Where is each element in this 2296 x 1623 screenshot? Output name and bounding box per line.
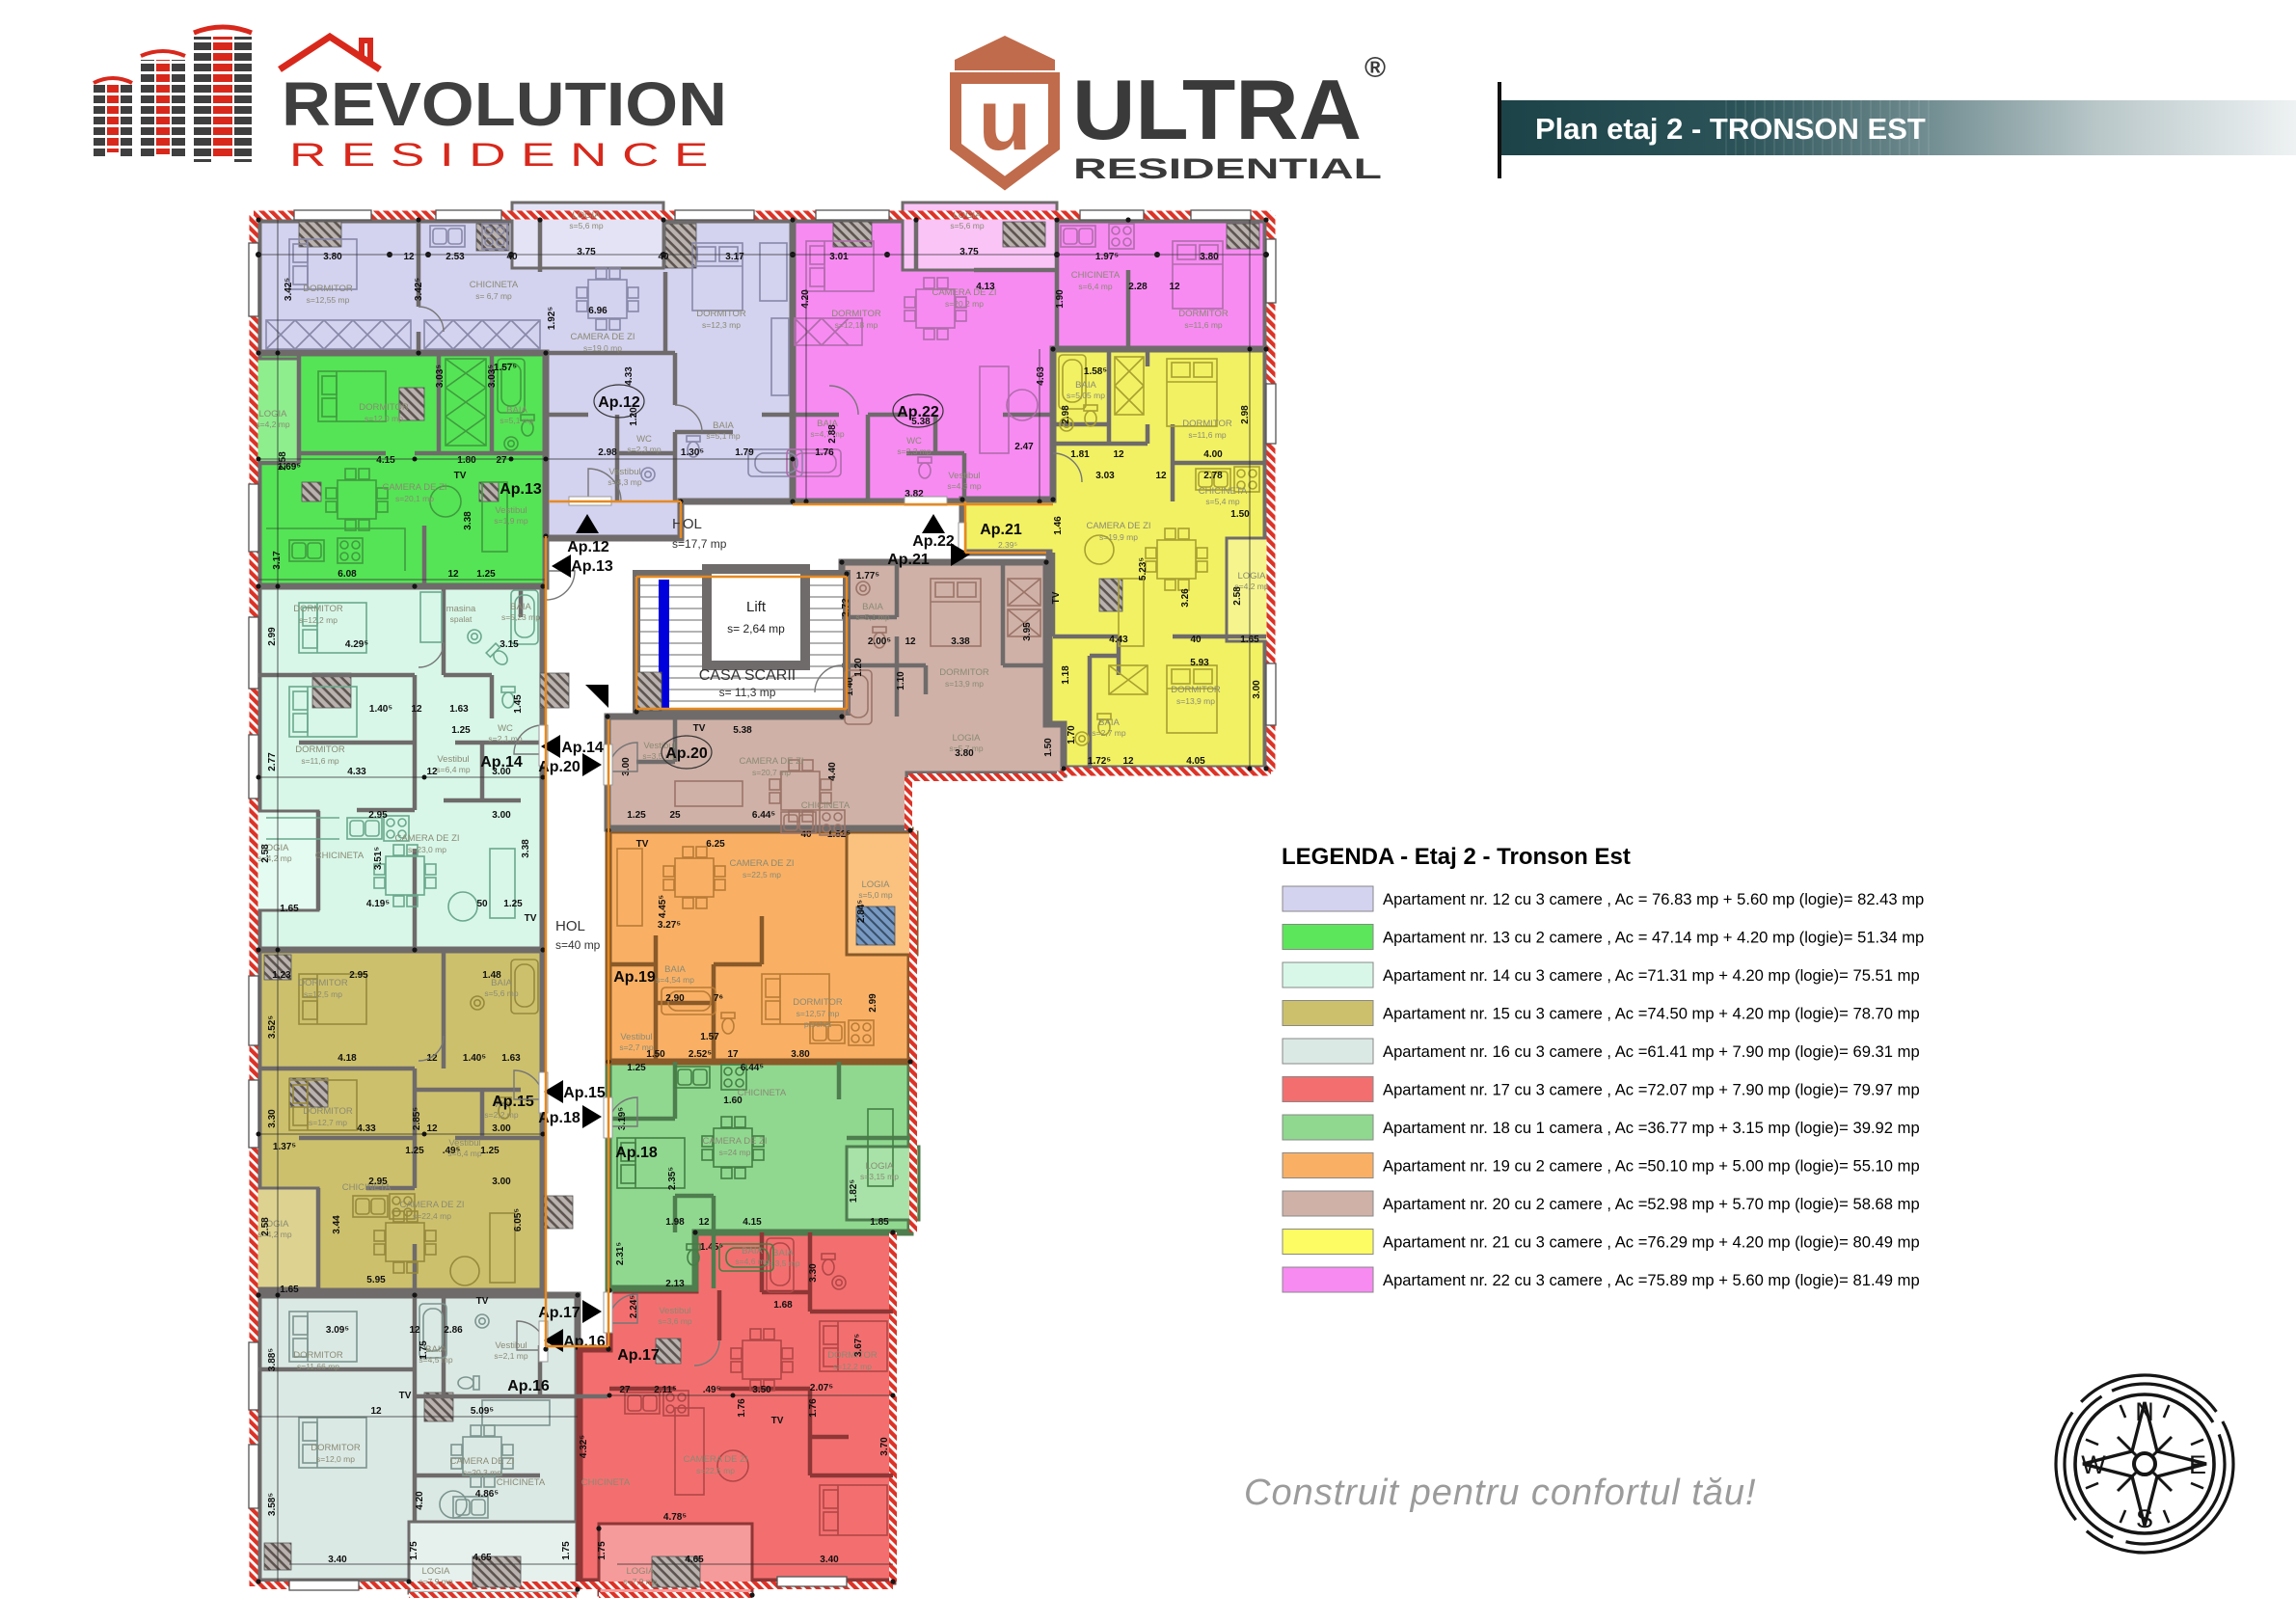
- svg-text:12: 12: [426, 1123, 438, 1134]
- svg-text:CAMERA DE ZI: CAMERA DE ZI: [570, 332, 635, 342]
- svg-text:E: E: [2189, 1450, 2206, 1479]
- svg-text:Ap.12: Ap.12: [567, 539, 609, 555]
- svg-text:2.47: 2.47: [1014, 442, 1034, 452]
- svg-text:Vestibul: Vestibul: [495, 505, 527, 516]
- svg-text:CASA SCARII: CASA SCARII: [699, 667, 796, 684]
- svg-text:3.70: 3.70: [879, 1437, 890, 1456]
- svg-text:s=3,6 mp: s=3,6 mp: [658, 1316, 691, 1326]
- svg-text:2.95: 2.95: [368, 1177, 388, 1187]
- svg-text:Ap.15: Ap.15: [563, 1085, 606, 1101]
- svg-text:4.86⁵: 4.86⁵: [475, 1489, 499, 1500]
- svg-text:TV: TV: [771, 1416, 784, 1426]
- svg-text:s= 6,7 mp: s= 6,7 mp: [475, 291, 512, 301]
- svg-text:2.98: 2.98: [1061, 405, 1071, 424]
- svg-text:ULTRA: ULTRA: [1072, 62, 1362, 157]
- svg-text:Ap.17: Ap.17: [617, 1347, 660, 1364]
- svg-text:12: 12: [426, 767, 438, 777]
- svg-text:3.00: 3.00: [621, 757, 632, 776]
- svg-text:2.99: 2.99: [868, 993, 878, 1013]
- svg-text:3.01: 3.01: [829, 252, 849, 262]
- svg-text:s=2,1 mp: s=2,1 mp: [494, 1351, 527, 1361]
- svg-text:2.13: 2.13: [665, 1279, 685, 1289]
- svg-text:1.65: 1.65: [280, 904, 299, 914]
- svg-text:1.23: 1.23: [272, 970, 291, 981]
- svg-text:s=5,23 mp: s=5,23 mp: [501, 612, 540, 622]
- svg-text:W: W: [2081, 1450, 2106, 1479]
- svg-text:s=20,3 mp: s=20,3 mp: [463, 1468, 501, 1477]
- svg-text:Apartament nr. 13 cu 2 camere: Apartament nr. 13 cu 2 camere , Ac = 47.…: [1383, 929, 1924, 947]
- svg-text:CHICINETA: CHICINETA: [497, 1477, 546, 1488]
- svg-text:BAIA: BAIA: [862, 602, 883, 612]
- svg-text:2.28: 2.28: [1128, 282, 1148, 292]
- svg-text:s=5,1 mp: s=5,1 mp: [500, 416, 533, 425]
- svg-text:1.82⁵: 1.82⁵: [849, 1179, 859, 1203]
- svg-text:1.92⁵: 1.92⁵: [547, 307, 557, 330]
- svg-text:1.40⁵: 1.40⁵: [463, 1053, 486, 1064]
- svg-text:DORMITOR: DORMITOR: [1171, 685, 1221, 695]
- svg-text:LOGIA: LOGIA: [953, 210, 982, 221]
- svg-text:3.51⁵: 3.51⁵: [373, 847, 384, 870]
- svg-text:12: 12: [403, 252, 415, 262]
- svg-text:Apartament nr. 12 cu 3 camere: Apartament nr. 12 cu 3 camere , Ac = 76.…: [1383, 890, 1924, 908]
- svg-text:1.20: 1.20: [629, 407, 639, 426]
- svg-text:3.50: 3.50: [752, 1385, 771, 1395]
- svg-text:12: 12: [447, 569, 459, 580]
- svg-text:Vestibul: Vestibul: [659, 1306, 690, 1316]
- svg-text:Vestibul: Vestibul: [948, 471, 980, 481]
- svg-text:3.03⁵: 3.03⁵: [435, 365, 446, 388]
- svg-text:7⁶: 7⁶: [714, 993, 723, 1004]
- svg-text:3.40: 3.40: [328, 1555, 347, 1565]
- svg-text:s=2,2 mp: s=2,2 mp: [484, 1110, 518, 1120]
- svg-text:LEGENDA - Etaj 2 - Tronson Est: LEGENDA - Etaj 2 - Tronson Est: [1282, 844, 1631, 870]
- svg-text:5.93: 5.93: [1190, 658, 1209, 668]
- svg-text:s=12,0 mp: s=12,0 mp: [316, 1454, 355, 1464]
- svg-text:DORMITOR: DORMITOR: [311, 1443, 361, 1453]
- svg-text:s=19,9 mp: s=19,9 mp: [1099, 532, 1138, 542]
- svg-text:1.76: 1.76: [815, 447, 834, 458]
- svg-text:3.42⁵: 3.42⁵: [414, 278, 424, 301]
- svg-text:2.88: 2.88: [827, 424, 838, 444]
- svg-text:2.99: 2.99: [267, 627, 278, 646]
- svg-text:1.25: 1.25: [480, 1146, 500, 1156]
- svg-text:4.15: 4.15: [743, 1217, 762, 1228]
- svg-text:12: 12: [411, 704, 422, 715]
- svg-text:1.60: 1.60: [723, 1096, 743, 1106]
- svg-text:1.70: 1.70: [1067, 725, 1077, 744]
- svg-text:s=12,2 mp: s=12,2 mp: [833, 1362, 872, 1371]
- svg-text:2.98: 2.98: [598, 447, 617, 458]
- svg-text:1.25: 1.25: [476, 569, 496, 580]
- svg-text:CHICINETA: CHICINETA: [1071, 270, 1121, 281]
- svg-text:TV: TV: [1051, 591, 1062, 604]
- svg-text:s=5,6 mp: s=5,6 mp: [569, 221, 603, 230]
- svg-text:1.10: 1.10: [896, 671, 906, 690]
- svg-text:1.75: 1.75: [597, 1541, 608, 1560]
- svg-text:6.44⁵: 6.44⁵: [752, 810, 775, 821]
- svg-text:1.75: 1.75: [409, 1541, 419, 1560]
- svg-text:3.09⁵: 3.09⁵: [326, 1325, 349, 1336]
- svg-text:CAMERA DE ZI: CAMERA DE ZI: [394, 833, 459, 844]
- svg-text:.49⁵: .49⁵: [703, 1385, 721, 1395]
- svg-text:s=12,3 mp: s=12,3 mp: [702, 320, 741, 330]
- svg-text:2.07⁵: 2.07⁵: [810, 1383, 833, 1393]
- svg-text:3.75: 3.75: [959, 247, 979, 257]
- svg-text:Ap.16: Ap.16: [563, 1334, 606, 1350]
- svg-text:DORMITOR: DORMITOR: [831, 309, 881, 319]
- svg-text:Ap.16: Ap.16: [507, 1378, 550, 1394]
- svg-text:1.75: 1.75: [561, 1541, 572, 1560]
- svg-text:s=6,4 mp: s=6,4 mp: [436, 765, 470, 774]
- svg-text:s=11,6 mp: s=11,6 mp: [301, 756, 339, 766]
- svg-text:s=23,0 mp: s=23,0 mp: [408, 845, 446, 854]
- svg-text:s=3,5 mp: s=3,5 mp: [766, 1258, 799, 1268]
- svg-text:LOGIA: LOGIA: [258, 409, 287, 419]
- svg-text:4.05: 4.05: [1186, 756, 1205, 767]
- svg-text:DORMITOR: DORMITOR: [1178, 309, 1229, 319]
- svg-text:TV: TV: [454, 471, 467, 481]
- svg-text:s=11,66 mp: s=11,66 mp: [297, 1362, 339, 1371]
- svg-text:4.43: 4.43: [1109, 635, 1128, 645]
- svg-text:1.79: 1.79: [735, 447, 754, 458]
- svg-text:s=4,2 mp: s=4,2 mp: [256, 419, 289, 429]
- svg-text:1.48: 1.48: [482, 970, 501, 981]
- svg-text:S: S: [2136, 1504, 2153, 1533]
- svg-text:CAMERA DE ZI: CAMERA DE ZI: [729, 858, 794, 869]
- svg-text:Vestibul: Vestibul: [620, 1032, 652, 1042]
- svg-text:Plan etaj 2 - TRONSON EST: Plan etaj 2 - TRONSON EST: [1535, 112, 1926, 146]
- svg-text:TV: TV: [636, 839, 649, 850]
- svg-text:3.80: 3.80: [955, 748, 974, 759]
- svg-text:s=12,7 mp: s=12,7 mp: [309, 1118, 347, 1127]
- svg-text:Ap.13: Ap.13: [500, 481, 542, 498]
- svg-text:1.37⁵: 1.37⁵: [273, 1142, 296, 1152]
- svg-text:12: 12: [1122, 756, 1134, 767]
- svg-text:3.03: 3.03: [1095, 471, 1115, 481]
- svg-text:s=4,3 mp: s=4,3 mp: [608, 477, 641, 487]
- svg-text:Ap.18: Ap.18: [615, 1145, 658, 1161]
- svg-text:2.95: 2.95: [368, 810, 388, 821]
- svg-text:CAMERA DE ZI: CAMERA DE ZI: [1086, 521, 1150, 531]
- svg-text:25: 25: [669, 810, 681, 821]
- svg-text:BAIA: BAIA: [1098, 717, 1120, 728]
- svg-text:s= 11,3 mp: s= 11,3 mp: [719, 686, 776, 699]
- svg-text:1.81: 1.81: [1070, 449, 1090, 460]
- svg-text:4.00: 4.00: [1203, 449, 1223, 460]
- svg-text:5.09⁵: 5.09⁵: [471, 1406, 494, 1417]
- svg-text:3.40: 3.40: [820, 1555, 839, 1565]
- svg-text:4.33: 4.33: [347, 767, 366, 777]
- svg-text:BAIA: BAIA: [772, 1248, 794, 1258]
- svg-text:Ap.19: Ap.19: [613, 969, 656, 986]
- svg-text:3.00: 3.00: [492, 810, 511, 821]
- svg-text:DORMITOR: DORMITOR: [359, 402, 409, 413]
- svg-text:12: 12: [1155, 471, 1167, 481]
- svg-text:Construit pentru confortul: Construit pentru confortul tău!: [1244, 1473, 1757, 1513]
- svg-text:masina: masina: [446, 604, 476, 614]
- svg-text:4.33: 4.33: [357, 1123, 376, 1134]
- svg-text:BAIA: BAIA: [510, 602, 531, 612]
- svg-text:Ap.13: Ap.13: [571, 558, 613, 575]
- svg-text:s=5,4 mp: s=5,4 mp: [1205, 497, 1239, 506]
- svg-text:3.17: 3.17: [725, 252, 744, 262]
- svg-text:s=5,05 mp: s=5,05 mp: [1067, 391, 1105, 400]
- svg-text:12: 12: [1169, 282, 1180, 292]
- svg-text:1.46: 1.46: [1053, 516, 1064, 535]
- svg-text:4.18: 4.18: [338, 1053, 357, 1064]
- svg-text:1.80: 1.80: [457, 455, 476, 466]
- svg-text:u: u: [979, 72, 1032, 169]
- svg-text:12: 12: [905, 636, 916, 647]
- svg-text:N: N: [2135, 1397, 2154, 1426]
- svg-text:6.05⁵: 6.05⁵: [513, 1208, 524, 1231]
- svg-text:s=4,3 mp: s=4,3 mp: [947, 481, 981, 491]
- svg-text:DORMITOR: DORMITOR: [295, 744, 345, 755]
- svg-text:CHICINETA: CHICINETA: [738, 1088, 787, 1098]
- svg-text:s=5,6 mp: s=5,6 mp: [484, 988, 518, 998]
- svg-text:1.30⁵: 1.30⁵: [681, 447, 704, 458]
- svg-text:1.57: 1.57: [700, 1032, 719, 1042]
- svg-text:s=12,55 mp: s=12,55 mp: [307, 295, 350, 305]
- svg-text:3.26: 3.26: [1180, 588, 1191, 608]
- svg-text:Apartament nr. 15 cu 3 camere: Apartament nr. 15 cu 3 camere , Ac =74.5…: [1383, 1005, 1920, 1023]
- svg-text:4.65: 4.65: [685, 1555, 704, 1565]
- svg-text:s=12,2 mp: s=12,2 mp: [299, 615, 338, 625]
- svg-text:1.25: 1.25: [503, 899, 523, 909]
- svg-text:1.20: 1.20: [853, 658, 864, 677]
- svg-text:4.65: 4.65: [473, 1553, 492, 1563]
- svg-text:Apartament nr. 21 cu 3 camere: Apartament nr. 21 cu 3 camere , Ac =76.2…: [1383, 1233, 1920, 1252]
- svg-text:4.15: 4.15: [376, 455, 395, 466]
- svg-text:Ap.15: Ap.15: [492, 1094, 534, 1110]
- svg-text:Vestibul: Vestibul: [437, 754, 469, 765]
- svg-text:Ap.21: Ap.21: [980, 522, 1022, 538]
- svg-text:3.00: 3.00: [492, 1177, 511, 1187]
- svg-text:CHICINETA: CHICINETA: [1199, 486, 1248, 497]
- svg-text:1.40⁵: 1.40⁵: [369, 704, 392, 715]
- svg-text:BAIA: BAIA: [713, 420, 734, 431]
- svg-text:DORMITOR: DORMITOR: [303, 1106, 353, 1117]
- svg-text:3.80: 3.80: [323, 252, 342, 262]
- svg-text:1.90: 1.90: [1055, 289, 1066, 309]
- svg-text:Apartament nr. 18 cu 1 camera: Apartament nr. 18 cu 1 camera , Ac =36.7…: [1383, 1119, 1920, 1137]
- svg-text:RESIDENTIAL: RESIDENTIAL: [1073, 153, 1382, 185]
- svg-text:3.42⁵: 3.42⁵: [284, 278, 294, 301]
- svg-text:DORMITOR: DORMITOR: [793, 997, 843, 1008]
- svg-text:4.33: 4.33: [624, 366, 635, 386]
- svg-text:2.86: 2.86: [444, 1325, 463, 1336]
- svg-text:TV: TV: [525, 913, 537, 924]
- svg-text:BAIA: BAIA: [742, 1246, 763, 1257]
- svg-text:3.52⁵: 3.52⁵: [267, 1015, 278, 1039]
- svg-text:CAMERA DE ZI: CAMERA DE ZI: [449, 1456, 514, 1467]
- svg-text:3.30: 3.30: [267, 1109, 278, 1128]
- svg-text:LOGIA: LOGIA: [952, 733, 981, 744]
- svg-text:CAMERA DE ZI: CAMERA DE ZI: [739, 756, 803, 767]
- svg-text:2.53: 2.53: [446, 252, 465, 262]
- svg-text:1.25: 1.25: [627, 810, 646, 821]
- svg-text:DORMITOR: DORMITOR: [696, 309, 746, 319]
- svg-text:Apartament nr. 17 cu 3 camere: Apartament nr. 17 cu 3 camere , Ac =72.0…: [1383, 1081, 1920, 1099]
- svg-text:s=20,7 mp: s=20,7 mp: [752, 768, 791, 777]
- svg-text:1.25: 1.25: [627, 1063, 646, 1073]
- svg-text:4.45⁵: 4.45⁵: [658, 895, 668, 918]
- svg-text:1.18: 1.18: [1061, 665, 1071, 685]
- svg-text:LOGIA: LOGIA: [626, 1566, 655, 1577]
- svg-text:4.19⁵: 4.19⁵: [366, 899, 390, 909]
- svg-text:s=12,57 mp: s=12,57 mp: [797, 1009, 840, 1018]
- svg-text:®: ®: [1364, 52, 1386, 84]
- svg-text:CAMERA DE ZI: CAMERA DE ZI: [683, 1454, 747, 1465]
- svg-text:3.88⁵: 3.88⁵: [267, 1348, 278, 1371]
- svg-text:3.27⁵: 3.27⁵: [658, 920, 681, 931]
- svg-text:DORMITOR: DORMITOR: [939, 667, 989, 678]
- svg-text:TV: TV: [693, 723, 706, 734]
- svg-text:2.78: 2.78: [1203, 471, 1223, 481]
- svg-text:Apartament nr. 14 cu 3 camere: Apartament nr. 14 cu 3 camere , Ac =71.3…: [1383, 966, 1920, 985]
- svg-text:.49⁵: .49⁵: [443, 1146, 461, 1156]
- svg-text:1.58⁵: 1.58⁵: [1084, 366, 1107, 377]
- svg-text:Apartament nr. 20 cu 2 camere: Apartament nr. 20 cu 2 camere , Ac =52.9…: [1383, 1195, 1920, 1213]
- svg-text:1.25: 1.25: [451, 725, 471, 736]
- svg-text:s=22,4 mp: s=22,4 mp: [413, 1211, 451, 1221]
- svg-text:TV: TV: [476, 1296, 489, 1307]
- svg-text:3.75: 3.75: [577, 247, 596, 257]
- svg-text:2.85⁵: 2.85⁵: [412, 1107, 422, 1130]
- svg-text:2.39⁵: 2.39⁵: [998, 540, 1017, 550]
- svg-text:1.75: 1.75: [419, 1340, 429, 1360]
- svg-text:s=24 mp: s=24 mp: [719, 1148, 751, 1157]
- svg-text:Ap.22: Ap.22: [912, 533, 955, 550]
- svg-text:s=20,2 mp: s=20,2 mp: [945, 299, 984, 309]
- svg-text:parchet: parchet: [804, 1019, 832, 1029]
- svg-text:CHICINETA: CHICINETA: [470, 280, 519, 290]
- svg-text:1.77⁵: 1.77⁵: [856, 571, 879, 582]
- svg-text:3.38: 3.38: [463, 511, 473, 530]
- svg-text:4.20: 4.20: [800, 289, 811, 309]
- svg-text:HOL: HOL: [555, 918, 585, 934]
- svg-text:2.58: 2.58: [1232, 586, 1243, 606]
- svg-text:s=12,0 mp: s=12,0 mp: [365, 414, 403, 423]
- svg-text:4.13: 4.13: [976, 282, 995, 292]
- svg-text:LOGIA: LOGIA: [865, 1161, 894, 1172]
- svg-text:2.98: 2.98: [1240, 405, 1251, 424]
- svg-text:4.20: 4.20: [415, 1491, 425, 1510]
- svg-text:3.58⁵: 3.58⁵: [267, 1493, 278, 1516]
- svg-text:2.00⁵: 2.00⁵: [868, 636, 891, 647]
- svg-text:s=11,6 mp: s=11,6 mp: [1184, 320, 1223, 330]
- svg-text:17: 17: [727, 1049, 739, 1060]
- svg-text:3.17: 3.17: [272, 551, 283, 570]
- svg-text:3.95: 3.95: [1022, 622, 1033, 641]
- svg-text:s=12,5 mp: s=12,5 mp: [304, 989, 342, 999]
- svg-text:3.44: 3.44: [332, 1215, 342, 1234]
- svg-text:3.80: 3.80: [791, 1049, 810, 1060]
- svg-text:2.58: 2.58: [260, 844, 271, 863]
- svg-text:3.00: 3.00: [492, 1123, 511, 1134]
- svg-text:CAMERA DE ZI: CAMERA DE ZI: [382, 482, 446, 493]
- svg-text:s=2,7 mp: s=2,7 mp: [1092, 728, 1125, 738]
- svg-text:s=1,9 mp: s=1,9 mp: [494, 516, 527, 526]
- svg-text:2.35⁵: 2.35⁵: [667, 1167, 678, 1190]
- svg-text:3.80: 3.80: [1200, 252, 1219, 262]
- svg-text:s=17,7 mp: s=17,7 mp: [672, 537, 727, 551]
- svg-text:1.50: 1.50: [646, 1049, 665, 1060]
- svg-text:CHICINETA: CHICINETA: [581, 1477, 631, 1488]
- svg-text:s=5,1 mp: s=5,1 mp: [706, 431, 740, 441]
- svg-text:DORMITOR: DORMITOR: [293, 604, 343, 614]
- svg-text:27: 27: [496, 455, 507, 466]
- svg-text:1.65: 1.65: [280, 1285, 299, 1295]
- svg-text:WC: WC: [498, 723, 513, 734]
- svg-text:LOGIA: LOGIA: [861, 879, 890, 890]
- svg-text:2.58: 2.58: [260, 1217, 271, 1236]
- svg-text:Lift: Lift: [746, 599, 767, 615]
- svg-text:HOL: HOL: [672, 516, 702, 532]
- svg-text:2.77: 2.77: [267, 752, 278, 771]
- svg-text:s=4,6 mp: s=4,6 mp: [735, 1257, 769, 1266]
- svg-text:CHICINETA: CHICINETA: [801, 800, 851, 811]
- svg-text:50: 50: [476, 899, 488, 909]
- svg-text:1.76: 1.76: [737, 1398, 747, 1418]
- svg-text:LOGIA: LOGIA: [1237, 571, 1266, 582]
- svg-text:s=12,18 mp: s=12,18 mp: [835, 320, 878, 330]
- svg-text:WC: WC: [906, 436, 922, 446]
- svg-text:4.32⁵: 4.32⁵: [579, 1435, 589, 1458]
- svg-text:6.08: 6.08: [338, 569, 357, 580]
- svg-text:s=22,5 mp: s=22,5 mp: [696, 1466, 735, 1475]
- svg-text:1.25: 1.25: [405, 1146, 424, 1156]
- svg-text:1.50: 1.50: [1230, 509, 1250, 520]
- svg-text:RESIDENCE: RESIDENCE: [289, 137, 723, 174]
- svg-text:DORMITOR: DORMITOR: [293, 1350, 343, 1361]
- svg-text:3.15: 3.15: [500, 639, 519, 650]
- svg-text:6.96: 6.96: [588, 306, 608, 316]
- svg-text:s= 2,64 mp: s= 2,64 mp: [727, 622, 785, 636]
- svg-text:s=7,9 mp: s=7,9 mp: [419, 1577, 452, 1586]
- svg-text:4.78⁵: 4.78⁵: [663, 1512, 687, 1523]
- svg-text:s=3,15 mp: s=3,15 mp: [860, 1172, 899, 1181]
- svg-text:5.38: 5.38: [911, 417, 931, 427]
- svg-text:Apartament nr. 22 cu 3 camere: Apartament nr. 22 cu 3 camere , Ac =75.8…: [1383, 1271, 1920, 1289]
- svg-text:4.63: 4.63: [1036, 366, 1046, 386]
- svg-text:5.95: 5.95: [366, 1275, 386, 1285]
- svg-text:s=4,54 mp: s=4,54 mp: [656, 975, 694, 985]
- svg-text:3.00: 3.00: [492, 767, 511, 777]
- svg-text:3.30: 3.30: [808, 1263, 819, 1283]
- svg-text:s=2,1 mp: s=2,1 mp: [488, 734, 522, 744]
- svg-text:s=6,4 mp: s=6,4 mp: [1078, 282, 1112, 291]
- svg-text:3.38: 3.38: [521, 839, 531, 858]
- svg-text:BAIA: BAIA: [1075, 380, 1096, 391]
- svg-text:1.50: 1.50: [1043, 738, 1054, 757]
- svg-text:1.57⁵: 1.57⁵: [494, 363, 517, 373]
- svg-text:Apartament nr. 19 cu 2 camere: Apartament nr. 19 cu 2 camere , Ac =50.1…: [1383, 1157, 1920, 1176]
- svg-text:1.63: 1.63: [449, 704, 469, 715]
- svg-text:5.38: 5.38: [733, 725, 752, 736]
- svg-text:4.29⁵: 4.29⁵: [345, 639, 368, 650]
- svg-text:12: 12: [370, 1406, 382, 1417]
- svg-text:1.45: 1.45: [513, 694, 524, 714]
- svg-text:2.11⁵: 2.11⁵: [654, 1385, 677, 1395]
- svg-text:s=5,6 mp: s=5,6 mp: [950, 221, 984, 230]
- svg-text:WC: WC: [636, 434, 652, 445]
- svg-text:5.23⁵: 5.23⁵: [1138, 557, 1148, 581]
- svg-text:LOGIA: LOGIA: [572, 210, 601, 221]
- svg-text:REVOLUTION: REVOLUTION: [282, 69, 727, 139]
- svg-text:6.25: 6.25: [706, 839, 725, 850]
- svg-text:CAMERA DE ZI: CAMERA DE ZI: [702, 1136, 767, 1147]
